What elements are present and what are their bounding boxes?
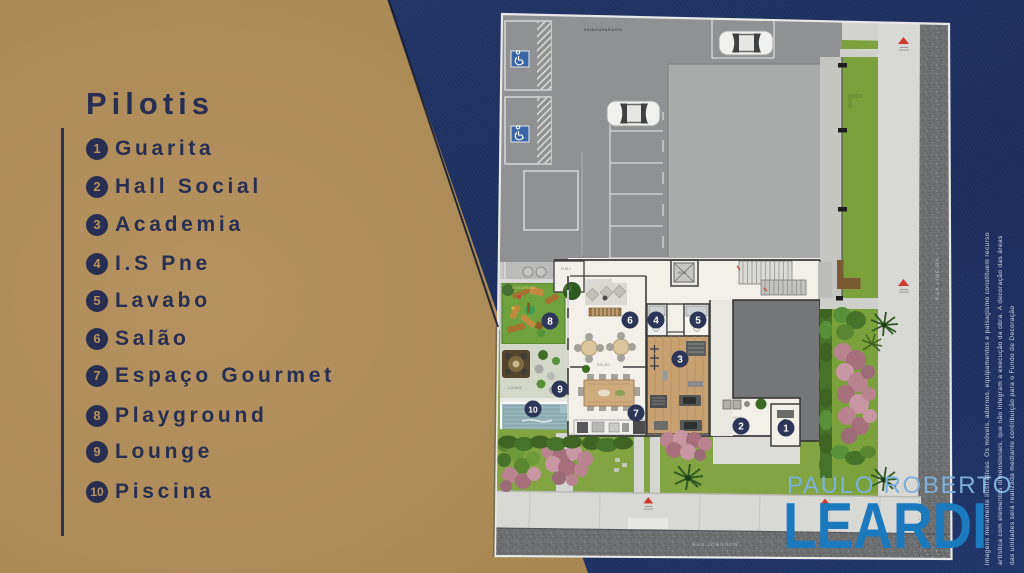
svg-text:9: 9 <box>557 385 563 396</box>
svg-text:RUA JOHNSON: RUA JOHNSON <box>692 542 738 547</box>
svg-text:1: 1 <box>783 424 789 435</box>
svg-text:7: 7 <box>633 409 639 420</box>
svg-text:6: 6 <box>627 316 633 327</box>
svg-text:LOUNGE: LOUNGE <box>508 386 523 390</box>
svg-text:5: 5 <box>695 316 701 327</box>
svg-text:4: 4 <box>653 316 659 327</box>
svg-text:10: 10 <box>528 405 538 415</box>
svg-text:ELEV: ELEV <box>678 271 687 275</box>
svg-text:2: 2 <box>738 422 744 433</box>
svg-text:RUA LIMEIRA: RUA LIMEIRA <box>935 257 941 300</box>
svg-text:3: 3 <box>677 355 683 366</box>
svg-text:SALÃO: SALÃO <box>597 362 610 367</box>
svg-text:D.M.L: D.M.L <box>561 267 571 271</box>
svg-text:PLAYGROUND: PLAYGROUND <box>512 286 536 290</box>
svg-text:8: 8 <box>547 317 553 328</box>
svg-text:estacionamento: estacionamento <box>584 27 623 32</box>
